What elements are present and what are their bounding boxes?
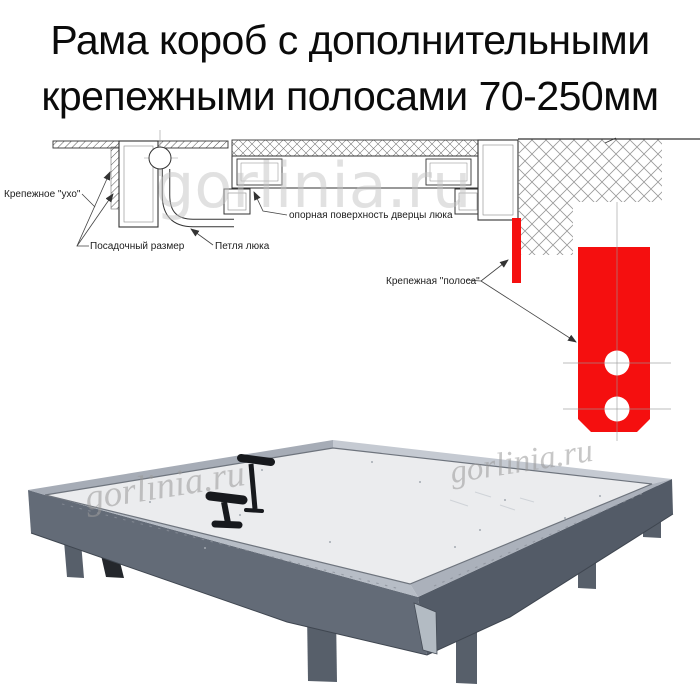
label-fastening-strip: Крепежная "полоса" [386, 276, 480, 287]
fastening-strip-small [512, 218, 521, 283]
watermark-diagram: gorlinia.ru [155, 149, 471, 222]
fastening-strip-detail [563, 202, 671, 441]
product-photo: gorlinia.ru gorlinia.ru [28, 433, 673, 684]
frame-profile-right [478, 140, 518, 220]
fastening-ear-hatch [111, 147, 119, 209]
wall-slab-hatch [518, 139, 662, 255]
label-hatch-hinge: Петля люка [215, 241, 270, 252]
technical-drawing: Крепежное "ухо" Посадочный размер Петля … [4, 130, 700, 441]
product-card: Рама короб с дополнительными крепежными … [0, 0, 700, 700]
label-fastening-ear: Крепежное "ухо" [4, 189, 81, 200]
label-mounting-size: Посадочный размер [90, 241, 185, 252]
illustration-canvas: Крепежное "ухо" Посадочный размер Петля … [0, 0, 700, 700]
